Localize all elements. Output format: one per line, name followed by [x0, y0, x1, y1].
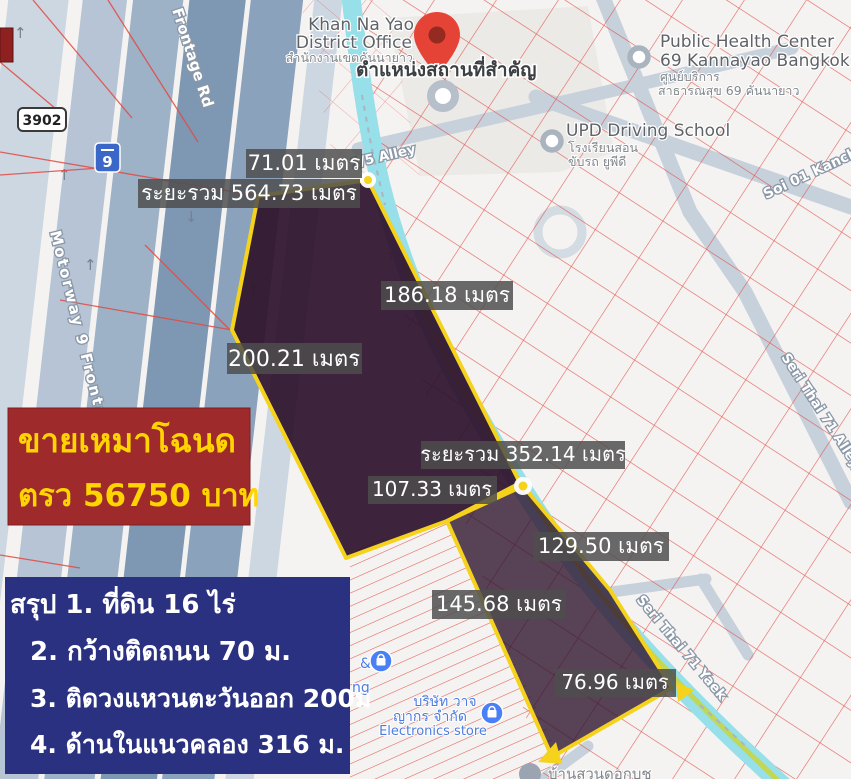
map-screenshot: ↑ ↑ ↑ ↑ ↑ ↓: [0, 0, 851, 779]
summary-panel: สรุป 1. ที่ดิน 16 ไร่ 2. กว้างติดถนน 70 …: [5, 577, 371, 774]
measure-value: ระยะรวม 564.73 เมตร: [141, 181, 357, 205]
up-arrow-icon: ↑: [58, 166, 71, 184]
up-arrow-icon: ↑: [84, 256, 97, 274]
sale-banner-line1: ขายเหมาโฉนด: [18, 421, 236, 460]
motorway-shield-number: 9: [102, 153, 112, 171]
measure-value: 71.01 เมตร: [248, 151, 361, 175]
measure-value: ระยะรวม 352.14 เมตร: [420, 442, 626, 466]
measure-value: 200.21 เมตร: [228, 347, 360, 372]
map-canvas[interactable]: ↑ ↑ ↑ ↑ ↑ ↓: [0, 0, 851, 779]
red-building-block: [0, 28, 13, 62]
measure-label-edge-bottom: 76.96 เมตร: [555, 669, 676, 697]
sale-banner: ขายเหมาโฉนด ตรว 56750 บาท: [8, 408, 259, 525]
shopping-bag-icon: [488, 710, 497, 718]
route-shield-number: 3902: [23, 113, 62, 129]
garden-house-name[interactable]: บ้านสวนดอกบุช: [548, 765, 652, 779]
measure-label-edge-neck: 107.33 เมตร: [368, 476, 497, 504]
down-arrow-icon: ↓: [185, 208, 198, 226]
district-office-name-line1[interactable]: Khan Na Yao: [308, 15, 414, 35]
measure-label-edge-canal-upper: 186.18 เมตร: [381, 281, 513, 310]
map-pin-hole: [429, 27, 446, 44]
measure-label-total-top: ระยะรวม 564.73 เมตร: [138, 179, 360, 208]
measure-label-edge-canal-lower: 129.50 เมตร: [533, 532, 669, 561]
measure-label-edge-left: 200.21 เมตร: [227, 343, 362, 374]
electronics-store-thai2[interactable]: ญากร จำกัด: [393, 709, 467, 725]
poi-ring-icon[interactable]: [543, 132, 561, 150]
measure-label-edge-top: 71.01 เมตร: [246, 149, 362, 178]
poi-ring-icon[interactable]: [630, 48, 648, 66]
measure-value: 107.33 เมตร: [372, 477, 492, 501]
electronics-store-name[interactable]: Electronics store: [379, 724, 487, 739]
up-arrow-icon: ↑: [14, 24, 27, 42]
measure-value: 76.96 เมตร: [561, 670, 669, 694]
motorway-shield-9: 9: [95, 143, 120, 172]
driving-school-thai1[interactable]: โรงเรียนสอน: [568, 140, 639, 155]
measure-node-center: [519, 482, 528, 491]
measure-label-edge-lower-left: 145.68 เมตร: [432, 590, 566, 619]
driving-school-line1[interactable]: UPD Driving School: [566, 121, 730, 141]
summary-line-4: 4. ด้านในแนวคลอง 316 ม.: [30, 729, 344, 759]
health-center-thai2[interactable]: สาธารณสุข 69 คันนายาว: [658, 83, 799, 99]
route-shield-3902: 3902: [18, 108, 66, 131]
summary-line-1: สรุป 1. ที่ดิน 16 ไร่: [10, 585, 236, 621]
summary-line-3: 3. ติดวงแหวนตะวันออก 200ม: [30, 684, 371, 713]
landmark-caption: ตำแหน่งสถานที่สำคัญ: [356, 56, 537, 81]
poi-ring-icon[interactable]: [431, 84, 455, 108]
summary-line-2: 2. กว้างติดถนน 70 ม.: [30, 637, 291, 667]
measure-node-center: [364, 176, 372, 184]
health-center-line2[interactable]: 69 Kannayao Bangkok: [660, 51, 850, 71]
measure-value: 145.68 เมตร: [436, 592, 562, 616]
store-pin[interactable]: [370, 650, 392, 672]
label-fragment-amp: &: [360, 656, 371, 672]
store-pin[interactable]: [481, 702, 503, 724]
health-center-line1[interactable]: Public Health Center: [660, 32, 834, 52]
measure-value: 129.50 เมตร: [538, 534, 664, 558]
electronics-store-thai1[interactable]: บริษัท วาจ: [413, 694, 476, 710]
sale-banner-line2: ตรว 56750 บาท: [18, 478, 259, 514]
measure-label-total-lower: ระยะรวม 352.14 เมตร: [420, 441, 626, 469]
measure-value: 186.18 เมตร: [384, 283, 510, 307]
shopping-bag-icon: [377, 658, 386, 666]
driving-school-thai2[interactable]: ขับรถ ยูพีดี: [568, 154, 626, 170]
